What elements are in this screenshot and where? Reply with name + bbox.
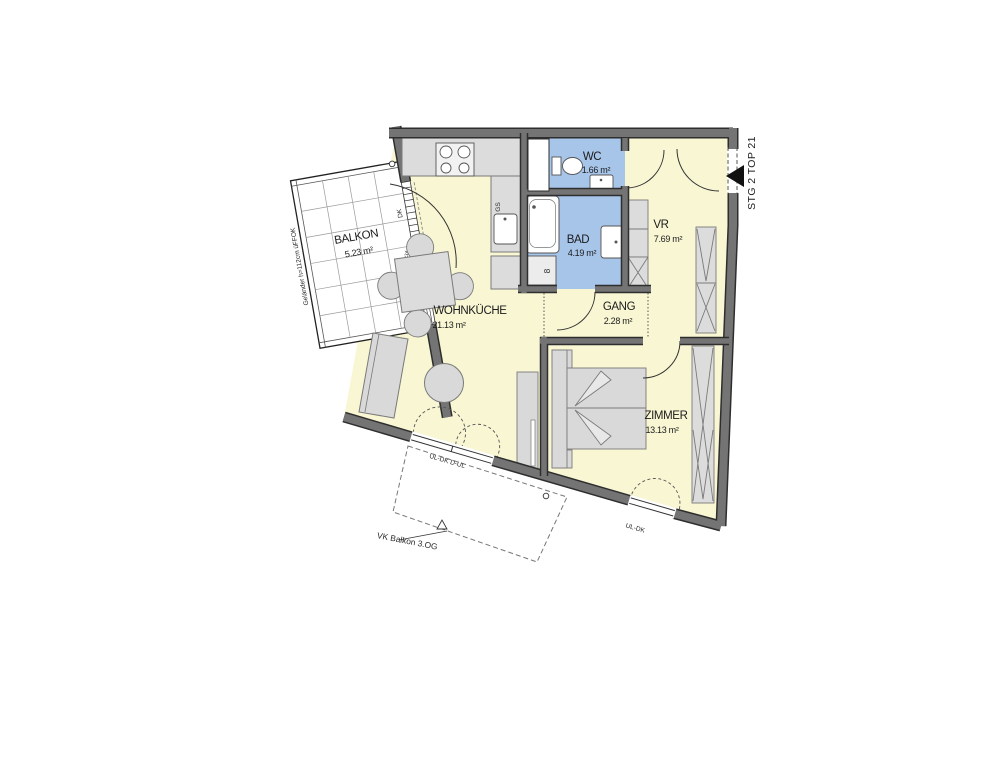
- vr-closet-left: [628, 200, 648, 288]
- entrance-label: STG 2 TOP 21: [746, 136, 758, 210]
- bad-faucet: [615, 241, 618, 244]
- zimmer-wardrobe: [692, 346, 714, 503]
- floorplan-drawing: BALKON 5.23 m² Geländer h=112cm üFFOK DK…: [0, 0, 1000, 769]
- room-label-bad: BAD: [567, 234, 590, 246]
- room-label-gang: GANG: [603, 301, 636, 313]
- balcony-above-label: VK Balkon 3.OG: [376, 530, 438, 552]
- room-label-wohnkueche: WOHNKÜCHE: [433, 305, 507, 317]
- cabinet-livingroom: [517, 372, 538, 473]
- room-label-zimmer: ZIMMER: [645, 410, 688, 422]
- vr-wardrobe-right: [696, 227, 716, 333]
- washing-machine-label: 8: [542, 268, 552, 273]
- drain-mark-facade: [543, 493, 549, 499]
- bed-headboard: [552, 350, 567, 468]
- wc-faucet: [600, 179, 603, 182]
- bathtub-drain: [532, 205, 536, 209]
- kitchen-faucet: [504, 218, 507, 221]
- bad-sink: [601, 226, 623, 258]
- room-area-bad: 4.19 m²: [568, 248, 597, 258]
- dishwasher-label: GS: [495, 202, 502, 212]
- room-label-wc: WC: [583, 151, 601, 163]
- kitchen-cabinet-low: [491, 256, 523, 289]
- room-area-vr: 7.69 m²: [654, 234, 683, 244]
- dining-table: [395, 252, 456, 313]
- coffee-table: [425, 364, 464, 403]
- toilet-bowl: [563, 158, 583, 175]
- shaft: [528, 139, 549, 191]
- floorplan-page: BALKON 5.23 m² Geländer h=112cm üFFOK DK…: [0, 0, 1000, 769]
- room-label-vr: VR: [653, 219, 668, 231]
- room-area-wc: 1.66 m²: [582, 165, 611, 175]
- entrance-opening: [726, 147, 744, 194]
- drain-mark-balcony: [389, 161, 395, 167]
- room-area-gang: 2.28 m²: [604, 316, 633, 326]
- room-area-wohnkueche: 21.13 m²: [432, 320, 465, 330]
- toilet-tank: [552, 157, 561, 175]
- window-zimmer-label: UL-DK: [625, 522, 647, 534]
- room-area-zimmer: 13.13 m²: [645, 425, 678, 435]
